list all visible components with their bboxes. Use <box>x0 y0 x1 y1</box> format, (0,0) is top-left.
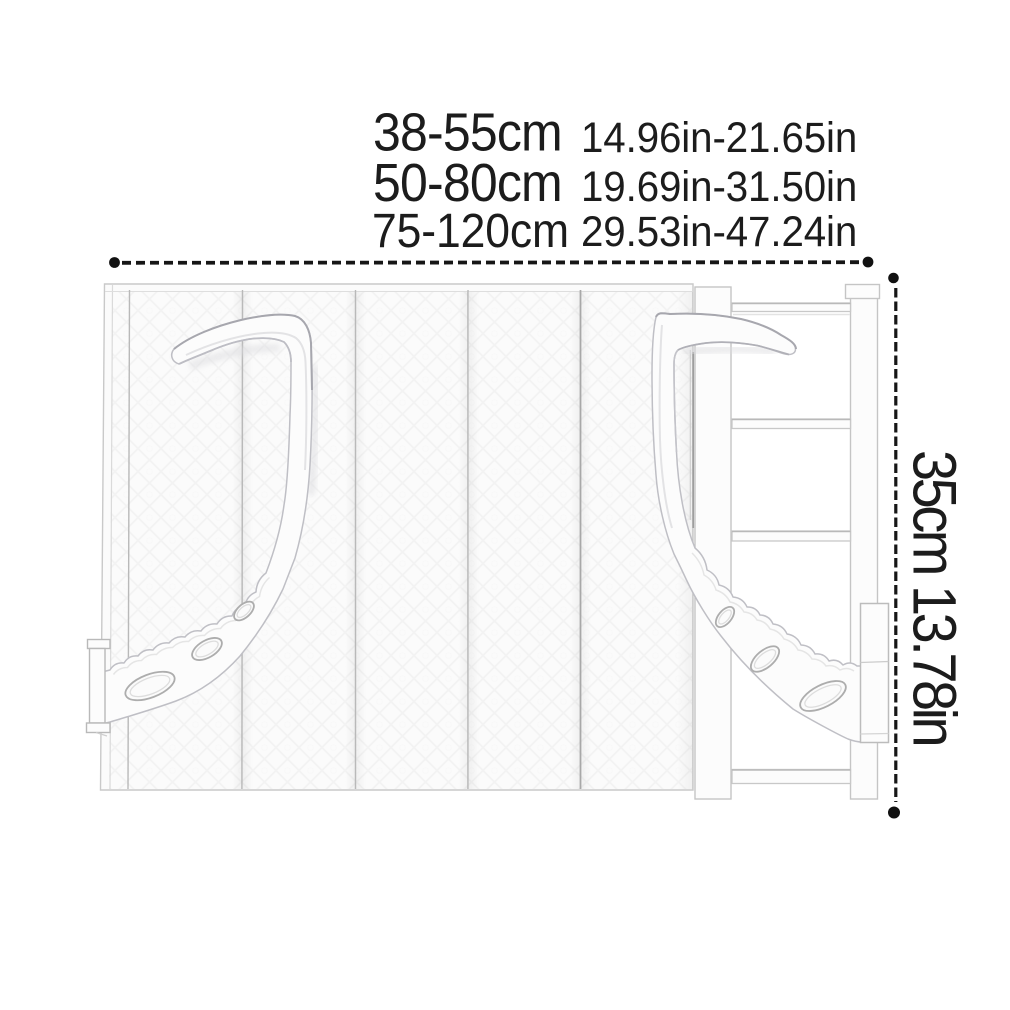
svg-text:14.96in-21.65in: 14.96in-21.65in <box>581 114 857 161</box>
svg-text:75-120cm: 75-120cm <box>372 203 569 257</box>
svg-text:35cm 13.78in: 35cm 13.78in <box>900 450 968 744</box>
svg-text:19.69in-31.50in: 19.69in-31.50in <box>581 163 857 210</box>
svg-text:29.53in-47.24in: 29.53in-47.24in <box>581 208 857 255</box>
